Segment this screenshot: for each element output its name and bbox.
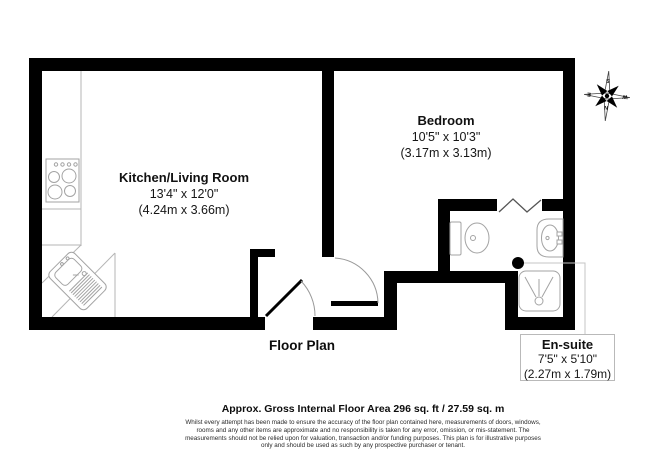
shower-tray-icon [519,271,560,311]
room-name: Bedroom [400,113,491,129]
wall-ensuite-top-right [542,199,563,211]
wall-kitchen-partition-stub [250,249,275,257]
compass-e: E [587,91,591,97]
room-name: En-suite [521,337,614,352]
room-dims-imperial: 10'5" x 10'3" [400,129,491,145]
bedroom-door [331,258,378,306]
wall-kitchen-partition-vertical [250,249,258,317]
wash-basin-icon [537,219,563,257]
room-dims-metric: (4.24m x 3.66m) [119,202,249,218]
bedroom-label: Bedroom 10'5" x 10'3" (3.17m x 3.13m) [400,113,491,161]
floor-plan-page: N S E W Kitchen/Living Room 13'4" x 12'0… [0,0,670,473]
gross-internal-area-line: Approx. Gross Internal Floor Area 296 sq… [222,403,505,415]
sink-drainer-unit [47,250,109,312]
disclaimer-line: measurements should not be relied upon f… [185,435,541,443]
room-name: Kitchen/Living Room [119,170,249,186]
wall-ensuite-top-left [438,199,497,211]
wall-right [563,58,575,330]
disclaimer-line: Whilst every attempt has been made to en… [185,419,541,427]
hob-icon [46,159,79,202]
toilet-icon [450,222,489,255]
wall-left [29,58,42,330]
disclaimer-line: only and should be used as such by any p… [185,442,541,450]
wall-kitchen-bedroom-divider [322,58,334,257]
compass-icon: N S E W [582,69,631,122]
room-dims-metric: (3.17m x 3.13m) [400,145,491,161]
walls [29,58,575,330]
room-dims-imperial: 13'4" x 12'0" [119,186,249,202]
disclaimer-line: rooms and any other items are approximat… [185,427,541,435]
plan-title: Floor Plan [269,338,335,353]
wall-bottom-kitchen [29,317,265,330]
compass-n: N [604,104,608,110]
ensuite-label-box: En-suite 7'5" x 5'10" (2.27m x 1.79m) [520,334,615,381]
compass-s: S [606,77,610,83]
room-dims-metric: (2.27m x 1.79m) [521,367,614,382]
zigzag-opening-symbol [499,199,541,212]
wall-bottom-ensuite [505,317,575,330]
wall-ensuite-left [438,199,450,283]
wall-bedroom-bottom [384,271,518,283]
disclaimer-text: Whilst every attempt has been made to en… [185,419,541,450]
kitchen-living-room-label: Kitchen/Living Room 13'4" x 12'0" (4.24m… [119,170,249,218]
pipe-dot [512,257,524,269]
entrance-door [266,280,315,316]
wall-top [29,58,575,71]
room-dims-imperial: 7'5" x 5'10" [521,352,614,367]
